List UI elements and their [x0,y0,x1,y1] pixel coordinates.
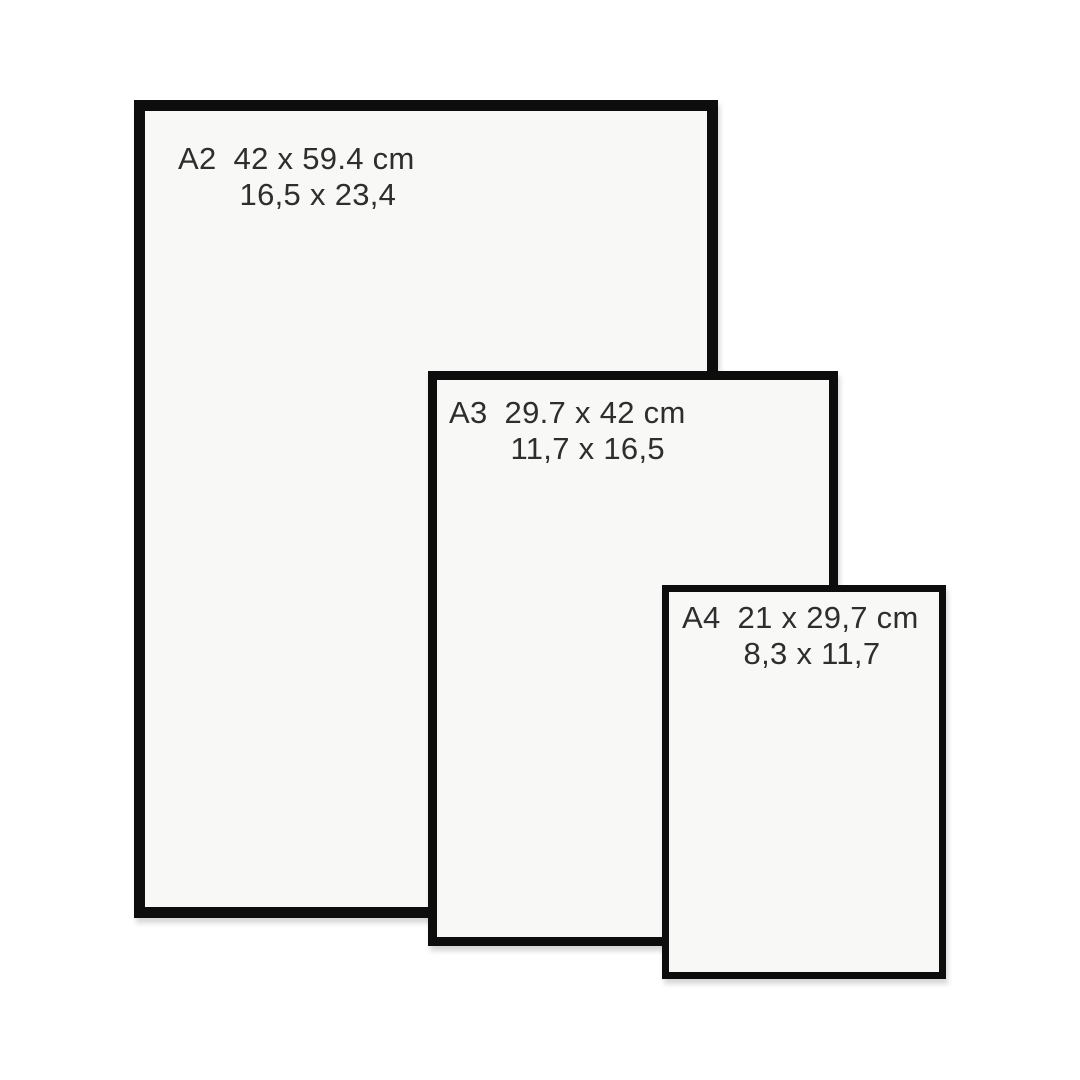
paper-size-label-a3: A3 29.7 x 42 cm 11,7 x 16,5 [437,380,829,467]
metric-dimensions-a4: 21 x 29,7 cm [738,600,919,636]
paper-size-label-a2: A2 42 x 59.4 cm 16,5 x 23,4 [145,111,707,213]
size-code-a4: A4 [682,600,721,636]
frame-a4: A4 21 x 29,7 cm 8,3 x 11,7 [662,585,946,979]
dimensions-a2: 42 x 59.4 cm 16,5 x 23,4 [234,141,415,213]
size-code-a3: A3 [449,395,488,431]
imperial-dimensions-a2: 16,5 x 23,4 [234,177,415,213]
imperial-dimensions-a3: 11,7 x 16,5 [505,431,686,467]
metric-dimensions-a2: 42 x 59.4 cm [234,141,415,177]
size-code-a2: A2 [178,141,217,177]
imperial-dimensions-a4: 8,3 x 11,7 [738,636,919,672]
paper-size-label-a4: A4 21 x 29,7 cm 8,3 x 11,7 [669,592,939,672]
dimensions-a4: 21 x 29,7 cm 8,3 x 11,7 [738,600,919,672]
metric-dimensions-a3: 29.7 x 42 cm [505,395,686,431]
dimensions-a3: 29.7 x 42 cm 11,7 x 16,5 [505,395,686,467]
size-comparison-diagram: A2 42 x 59.4 cm 16,5 x 23,4 A3 29.7 x 42… [0,0,1080,1080]
